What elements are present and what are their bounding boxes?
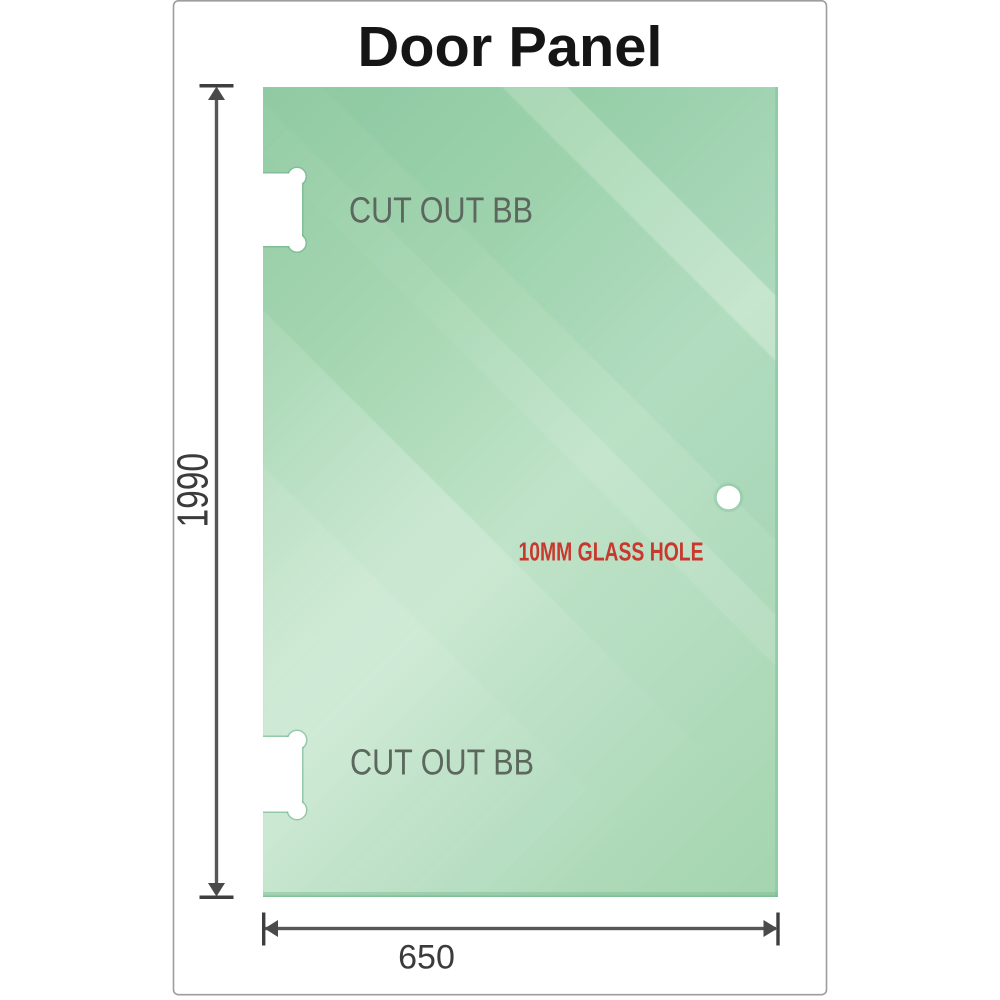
svg-text:CUT OUT BB: CUT OUT BB [350,742,534,783]
svg-text:650: 650 [398,939,455,977]
svg-text:1990: 1990 [169,453,218,528]
svg-text:Door Panel: Door Panel [358,15,663,79]
svg-text:10MM GLASS HOLE: 10MM GLASS HOLE [519,537,704,567]
svg-text:CUT OUT BB: CUT OUT BB [349,190,533,231]
